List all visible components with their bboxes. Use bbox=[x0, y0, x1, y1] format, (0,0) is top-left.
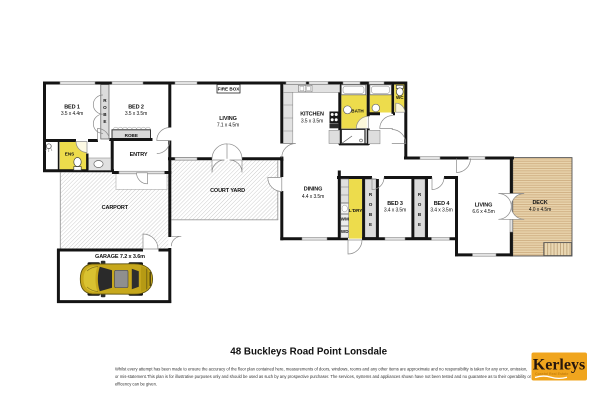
svg-text:efficency can be given.: efficency can be given. bbox=[115, 381, 157, 386]
svg-text:BED 3: BED 3 bbox=[387, 201, 403, 207]
svg-text:ENS: ENS bbox=[65, 152, 74, 157]
svg-text:3.5 x 4.4m: 3.5 x 4.4m bbox=[61, 111, 83, 117]
svg-text:3.5 x 3.5m: 3.5 x 3.5m bbox=[125, 111, 147, 117]
svg-text:KITCHEN: KITCHEN bbox=[300, 111, 324, 117]
svg-text:E: E bbox=[103, 119, 106, 124]
svg-text:WM: WM bbox=[341, 217, 349, 222]
svg-text:or mis-statement.This plan is: or mis-statement.This plan is for illust… bbox=[115, 374, 532, 379]
svg-text:FIRE BOX: FIRE BOX bbox=[218, 87, 241, 92]
svg-text:E: E bbox=[369, 222, 372, 227]
svg-text:48 Buckleys Road Point Lonsdal: 48 Buckleys Road Point Lonsdale bbox=[230, 347, 387, 358]
svg-text:Whilst every attempt has been: Whilst every attempt has been made to en… bbox=[115, 366, 527, 371]
svg-text:4.4 x 3.5m: 4.4 x 3.5m bbox=[302, 194, 324, 200]
svg-text:CARPORT: CARPORT bbox=[102, 205, 129, 211]
svg-text:O: O bbox=[369, 202, 373, 207]
svg-text:BED 4: BED 4 bbox=[434, 201, 451, 207]
svg-text:7.1 x 4.5m: 7.1 x 4.5m bbox=[217, 123, 239, 129]
svg-text:Coastal Real Estate: Coastal Real Estate bbox=[535, 372, 568, 376]
svg-text:COURT YARD: COURT YARD bbox=[210, 188, 245, 194]
svg-text:ENTRY: ENTRY bbox=[130, 152, 148, 158]
svg-text:GARAGE 7.2 x 3.6m: GARAGE 7.2 x 3.6m bbox=[95, 254, 145, 260]
svg-text:DECK: DECK bbox=[532, 200, 547, 206]
svg-text:ROBE: ROBE bbox=[125, 133, 138, 138]
svg-text:O: O bbox=[418, 202, 422, 207]
svg-text:4.0 x 4.5m: 4.0 x 4.5m bbox=[529, 207, 551, 213]
svg-text:L'DRY: L'DRY bbox=[349, 208, 362, 213]
svg-text:BATH: BATH bbox=[351, 109, 364, 114]
svg-text:E: E bbox=[418, 222, 421, 227]
svg-text:BED 2: BED 2 bbox=[128, 105, 144, 111]
svg-text:3.4 x 3.5m: 3.4 x 3.5m bbox=[384, 207, 406, 213]
svg-text:LIVING: LIVING bbox=[475, 203, 493, 209]
svg-text:BED 1: BED 1 bbox=[64, 105, 80, 111]
svg-text:Kerleys: Kerleys bbox=[533, 357, 585, 374]
svg-text:LIVING: LIVING bbox=[219, 116, 237, 122]
svg-text:DINING: DINING bbox=[304, 187, 323, 193]
svg-text:WD: WD bbox=[341, 229, 349, 234]
svg-text:3.5 x 3.5m: 3.5 x 3.5m bbox=[301, 118, 323, 124]
svg-text:O: O bbox=[103, 105, 107, 110]
svg-text:6.6 x 4.5m: 6.6 x 4.5m bbox=[472, 209, 494, 215]
svg-text:3.4 x 3.5m: 3.4 x 3.5m bbox=[430, 207, 452, 213]
